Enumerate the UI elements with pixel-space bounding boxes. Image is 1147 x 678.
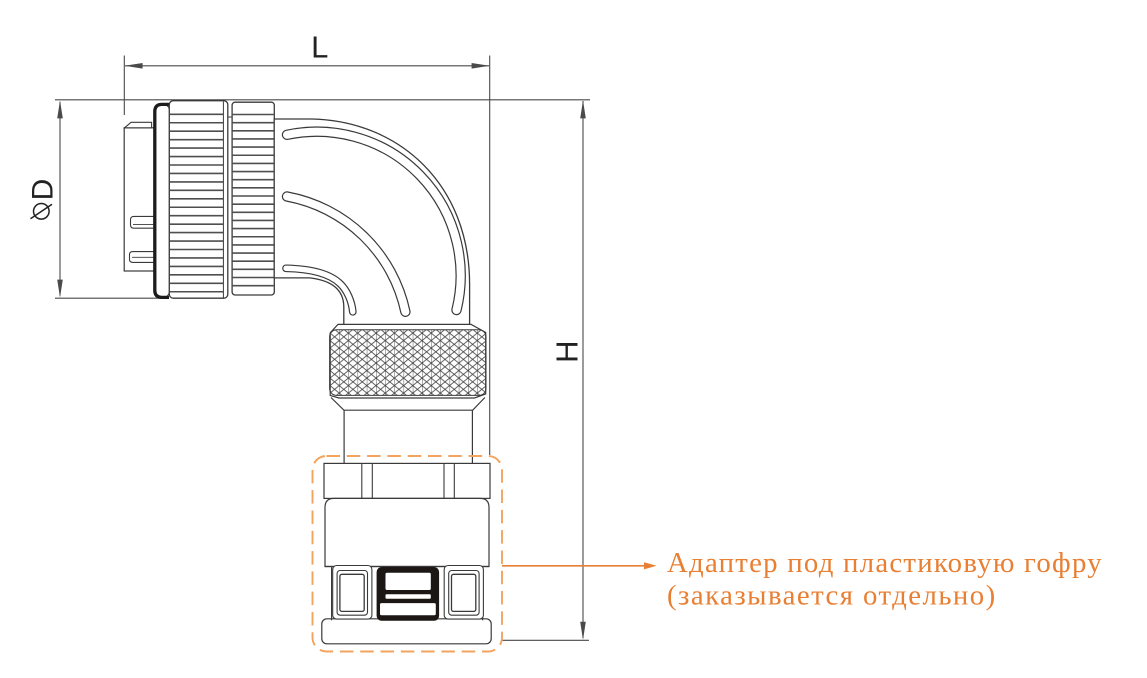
svg-text:D: D xyxy=(26,179,59,201)
svg-text:Адаптер под пластиковую гофру: Адаптер под пластиковую гофру xyxy=(667,547,1103,579)
svg-text:H: H xyxy=(550,341,585,363)
svg-text:(заказывается отдельно): (заказывается отдельно) xyxy=(667,579,997,611)
svg-text:L: L xyxy=(311,30,328,65)
